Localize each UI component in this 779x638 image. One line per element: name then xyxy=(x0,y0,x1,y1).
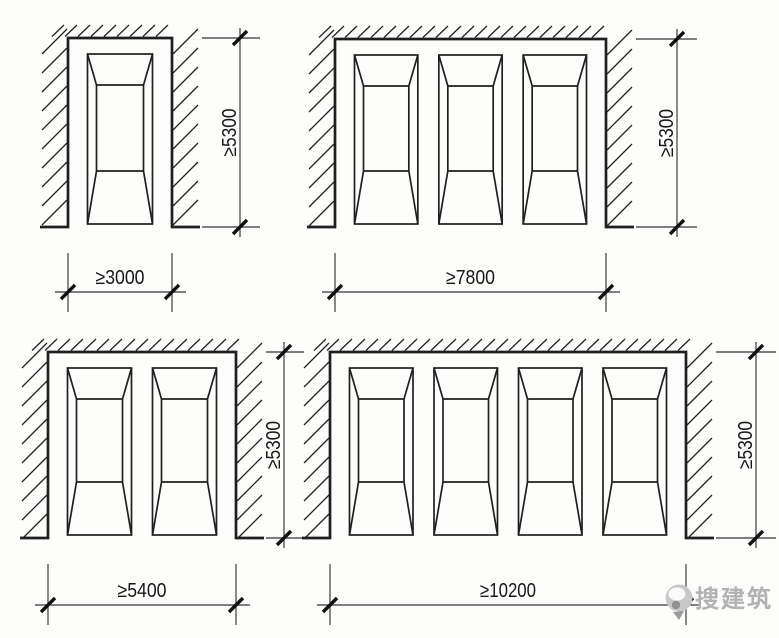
hatch-line xyxy=(687,476,712,501)
watermark-logo-pointer xyxy=(673,611,684,620)
hatch-line xyxy=(304,514,329,539)
hatch-line xyxy=(553,26,565,38)
space-taper-line xyxy=(88,54,97,85)
hatch-line xyxy=(607,68,632,93)
hatch-line xyxy=(314,339,326,351)
hatch-line xyxy=(304,457,329,482)
hatch-line xyxy=(687,495,712,520)
hatch-line xyxy=(309,125,334,150)
hatch-line xyxy=(449,26,461,38)
hatch-line xyxy=(353,339,365,351)
hatch-line xyxy=(574,339,586,351)
space-taper-line xyxy=(493,55,502,86)
hatch-line xyxy=(607,106,632,131)
hatch-line xyxy=(22,476,47,501)
space-taper-line xyxy=(68,368,77,399)
hatch-line xyxy=(309,106,334,131)
hatch-line xyxy=(149,339,161,351)
space-taper-line xyxy=(144,54,153,85)
hatch-line xyxy=(522,339,534,351)
hatch-line xyxy=(304,438,329,463)
space-taper-line xyxy=(658,368,667,399)
hatch-line xyxy=(561,339,573,351)
hatch-line xyxy=(392,339,404,351)
hatch-line xyxy=(687,419,712,444)
hatch-line xyxy=(607,182,632,207)
space-taper-line xyxy=(208,368,217,399)
space-taper-line xyxy=(489,368,498,399)
hatch-line xyxy=(470,339,482,351)
hatch-line xyxy=(514,26,526,38)
height-dimension-label: ≥5300 xyxy=(735,421,757,469)
dimensions: ≥3000≥5300 xyxy=(55,28,260,312)
hatch-line xyxy=(123,339,135,351)
diagram-bay-4-space: ≥10200≥5300 xyxy=(302,339,776,625)
space-taper-line xyxy=(493,171,502,224)
space-taper-line xyxy=(355,55,364,86)
wall-hatching xyxy=(304,339,712,539)
wall-outline xyxy=(302,352,714,538)
hatch-line xyxy=(71,339,83,351)
space-taper-line xyxy=(153,482,162,535)
hatch-line xyxy=(237,495,262,520)
hatch-line xyxy=(509,339,521,351)
parking-space-symbol xyxy=(523,55,586,224)
hatch-line xyxy=(410,26,422,38)
hatch-line xyxy=(457,339,469,351)
hatch-line xyxy=(496,339,508,351)
hatch-line xyxy=(309,87,334,112)
hatch-line xyxy=(566,26,578,38)
hatch-line xyxy=(173,86,198,111)
hatch-line xyxy=(304,419,329,444)
hatch-line xyxy=(379,339,391,351)
hatch-line xyxy=(304,495,329,520)
hatch-line xyxy=(607,87,632,112)
hatch-line xyxy=(687,457,712,482)
dimensions: ≥5400≥5300 xyxy=(35,342,304,625)
hatch-line xyxy=(110,339,122,351)
hatch-line xyxy=(483,339,495,351)
hatch-line xyxy=(136,339,148,351)
hatch-line xyxy=(687,343,712,368)
hatch-line xyxy=(607,49,632,74)
hatch-line xyxy=(237,400,262,425)
hatch-line xyxy=(237,514,262,539)
hatch-line xyxy=(214,339,226,351)
hatch-line xyxy=(652,339,664,351)
hatch-line xyxy=(309,68,334,93)
hatch-line xyxy=(237,343,262,368)
hatch-line xyxy=(173,29,198,54)
wall-outline xyxy=(307,39,634,227)
dimensions: ≥10200≥5300 xyxy=(317,342,776,625)
space-taper-line xyxy=(603,482,612,535)
space-taper-line xyxy=(208,482,217,535)
width-dimension-label: ≥10200 xyxy=(480,580,536,602)
hatch-line xyxy=(65,25,77,37)
space-taper-line xyxy=(573,368,582,399)
hatch-line xyxy=(304,476,329,501)
space-taper-line xyxy=(350,482,359,535)
hatch-line xyxy=(237,476,262,501)
wall-outline xyxy=(40,38,200,227)
hatch-line xyxy=(237,419,262,444)
space-taper-line xyxy=(573,482,582,535)
hatch-line xyxy=(42,124,67,149)
hatch-line xyxy=(587,339,599,351)
height-dimension-label: ≥5300 xyxy=(219,109,241,157)
hatch-line xyxy=(309,163,334,188)
parking-space-symbol xyxy=(153,368,217,535)
space-taper-line xyxy=(489,482,498,535)
hatch-line xyxy=(304,343,329,368)
hatch-line xyxy=(345,26,357,38)
parking-space-symbol xyxy=(350,368,414,535)
space-taper-line xyxy=(439,55,448,86)
hatch-line xyxy=(173,48,198,73)
space-taper-line xyxy=(578,55,587,86)
hatch-line xyxy=(130,25,142,37)
hatch-line xyxy=(22,419,47,444)
space-taper-line xyxy=(409,171,418,224)
hatch-line xyxy=(462,26,474,38)
space-taper-line xyxy=(68,482,77,535)
width-dimension-label: ≥3000 xyxy=(96,267,145,289)
hatch-line xyxy=(162,339,174,351)
hatch-line xyxy=(358,26,370,38)
hatch-line xyxy=(52,25,64,37)
watermark-text: 搜建筑 xyxy=(695,585,773,613)
space-taper-line xyxy=(578,171,587,224)
space-taper-line xyxy=(434,482,443,535)
hatch-line xyxy=(188,339,200,351)
hatch-line xyxy=(42,67,67,92)
hatch-line xyxy=(173,67,198,92)
hatch-line xyxy=(687,400,712,425)
parking-space-symbol xyxy=(68,368,132,535)
hatch-line xyxy=(304,400,329,425)
hatch-line xyxy=(384,26,396,38)
hatch-line xyxy=(397,26,409,38)
hatch-line xyxy=(97,339,109,351)
hatch-line xyxy=(613,339,625,351)
hatch-line xyxy=(687,362,712,387)
space-taper-line xyxy=(409,55,418,86)
hatch-line xyxy=(237,362,262,387)
hatch-line xyxy=(143,25,155,37)
hatch-line xyxy=(309,201,334,226)
hatch-line xyxy=(607,125,632,150)
height-dimension-label: ≥5300 xyxy=(263,421,285,469)
hatch-line xyxy=(309,182,334,207)
hatch-line xyxy=(592,26,604,38)
space-taper-line xyxy=(523,55,532,86)
hatch-line xyxy=(687,438,712,463)
hatch-line xyxy=(607,30,632,55)
space-taper-line xyxy=(658,482,667,535)
hatch-line xyxy=(366,339,378,351)
space-taper-line xyxy=(123,368,132,399)
space-taper-line xyxy=(603,368,612,399)
hatch-line xyxy=(42,143,67,168)
hatch-line xyxy=(237,457,262,482)
hatch-line xyxy=(42,29,67,54)
hatch-line xyxy=(237,381,262,406)
hatch-line xyxy=(304,381,329,406)
hatch-line xyxy=(91,25,103,37)
hatch-line xyxy=(488,26,500,38)
hatch-line xyxy=(607,201,632,226)
wall-hatching xyxy=(22,339,262,539)
hatch-line xyxy=(45,339,57,351)
hatch-line xyxy=(639,339,651,351)
hatch-line xyxy=(175,339,187,351)
diagram-bay-1-space: ≥3000≥5300 xyxy=(40,25,260,312)
hatch-line xyxy=(309,49,334,74)
hatch-line xyxy=(607,144,632,169)
space-taper-line xyxy=(144,171,153,224)
hatch-line xyxy=(405,339,417,351)
hatch-line xyxy=(687,381,712,406)
parking-space-symbol xyxy=(88,54,153,224)
space-taper-line xyxy=(439,171,448,224)
hatch-line xyxy=(22,514,47,539)
space-taper-line xyxy=(519,368,528,399)
hatch-line xyxy=(42,86,67,111)
space-taper-line xyxy=(153,368,162,399)
hatch-line xyxy=(227,339,239,351)
hatch-line xyxy=(687,514,712,539)
hatch-line xyxy=(535,339,547,351)
hatch-line xyxy=(201,339,213,351)
hatch-line xyxy=(600,339,612,351)
hatch-line xyxy=(173,143,198,168)
parking-space-symbol xyxy=(434,368,498,535)
height-dimension-label: ≥5300 xyxy=(656,109,678,157)
hatch-line xyxy=(22,343,47,368)
parking-space-symbol xyxy=(439,55,502,224)
space-taper-line xyxy=(404,482,413,535)
hatch-line xyxy=(173,124,198,149)
parking-clearance-drawing: ≥3000≥5300≥7800≥5300≥5400≥5300≥10200≥530… xyxy=(0,0,779,633)
hatch-line xyxy=(304,362,329,387)
hatch-line xyxy=(42,162,67,187)
watermark-logo-highlight xyxy=(669,588,686,601)
hatch-line xyxy=(431,339,443,351)
hatch-line xyxy=(665,339,677,351)
hatch-line xyxy=(22,400,47,425)
hatch-line xyxy=(340,339,352,351)
hatch-line xyxy=(22,457,47,482)
hatch-line xyxy=(237,438,262,463)
hatch-line xyxy=(579,26,591,38)
hatch-line xyxy=(607,163,632,188)
hatch-line xyxy=(626,339,638,351)
watermark: 搜建筑 xyxy=(666,585,774,621)
hatch-line xyxy=(84,339,96,351)
hatch-line xyxy=(42,48,67,73)
space-taper-line xyxy=(434,368,443,399)
hatch-line xyxy=(540,26,552,38)
hatch-line xyxy=(332,26,344,38)
hatch-line xyxy=(678,339,690,351)
width-dimension-label: ≥7800 xyxy=(446,267,495,289)
hatch-line xyxy=(42,181,67,206)
hatch-line xyxy=(42,105,67,130)
parking-space-symbol xyxy=(603,368,667,535)
space-taper-line xyxy=(523,171,532,224)
hatch-line xyxy=(156,25,168,37)
hatch-line xyxy=(22,381,47,406)
technical-drawing-page: ≥3000≥5300≥7800≥5300≥5400≥5300≥10200≥530… xyxy=(0,0,779,638)
space-taper-line xyxy=(404,368,413,399)
diagram-bay-3-space: ≥7800≥5300 xyxy=(307,26,697,312)
hatch-line xyxy=(319,26,331,38)
hatch-line xyxy=(327,339,339,351)
hatch-line xyxy=(173,200,198,225)
hatch-line xyxy=(22,362,47,387)
wall-hatching xyxy=(309,26,632,226)
hatch-line xyxy=(309,30,334,55)
space-taper-line xyxy=(350,368,359,399)
parking-space-symbol xyxy=(519,368,583,535)
hatch-line xyxy=(475,26,487,38)
space-taper-line xyxy=(88,171,97,224)
hatch-line xyxy=(117,25,129,37)
width-dimension-label: ≥5400 xyxy=(118,580,167,602)
watermark-logo-dot xyxy=(672,601,680,609)
hatch-line xyxy=(418,339,430,351)
hatch-line xyxy=(371,26,383,38)
hatch-line xyxy=(548,339,560,351)
hatch-line xyxy=(32,339,44,351)
space-taper-line xyxy=(123,482,132,535)
hatch-line xyxy=(173,105,198,130)
wall-hatching xyxy=(42,25,198,225)
hatch-line xyxy=(58,339,70,351)
hatch-line xyxy=(104,25,116,37)
wall-outline xyxy=(20,352,264,538)
space-taper-line xyxy=(519,482,528,535)
hatch-line xyxy=(173,162,198,187)
hatch-line xyxy=(527,26,539,38)
hatch-line xyxy=(22,495,47,520)
hatch-line xyxy=(436,26,448,38)
hatch-line xyxy=(501,26,513,38)
hatch-line xyxy=(309,144,334,169)
space-taper-line xyxy=(355,171,364,224)
hatch-line xyxy=(173,181,198,206)
hatch-line xyxy=(42,200,67,225)
hatch-line xyxy=(78,25,90,37)
hatch-line xyxy=(423,26,435,38)
hatch-line xyxy=(444,339,456,351)
diagram-bay-2-space: ≥5400≥5300 xyxy=(20,339,304,625)
parking-space-symbol xyxy=(355,55,418,224)
hatch-line xyxy=(22,438,47,463)
